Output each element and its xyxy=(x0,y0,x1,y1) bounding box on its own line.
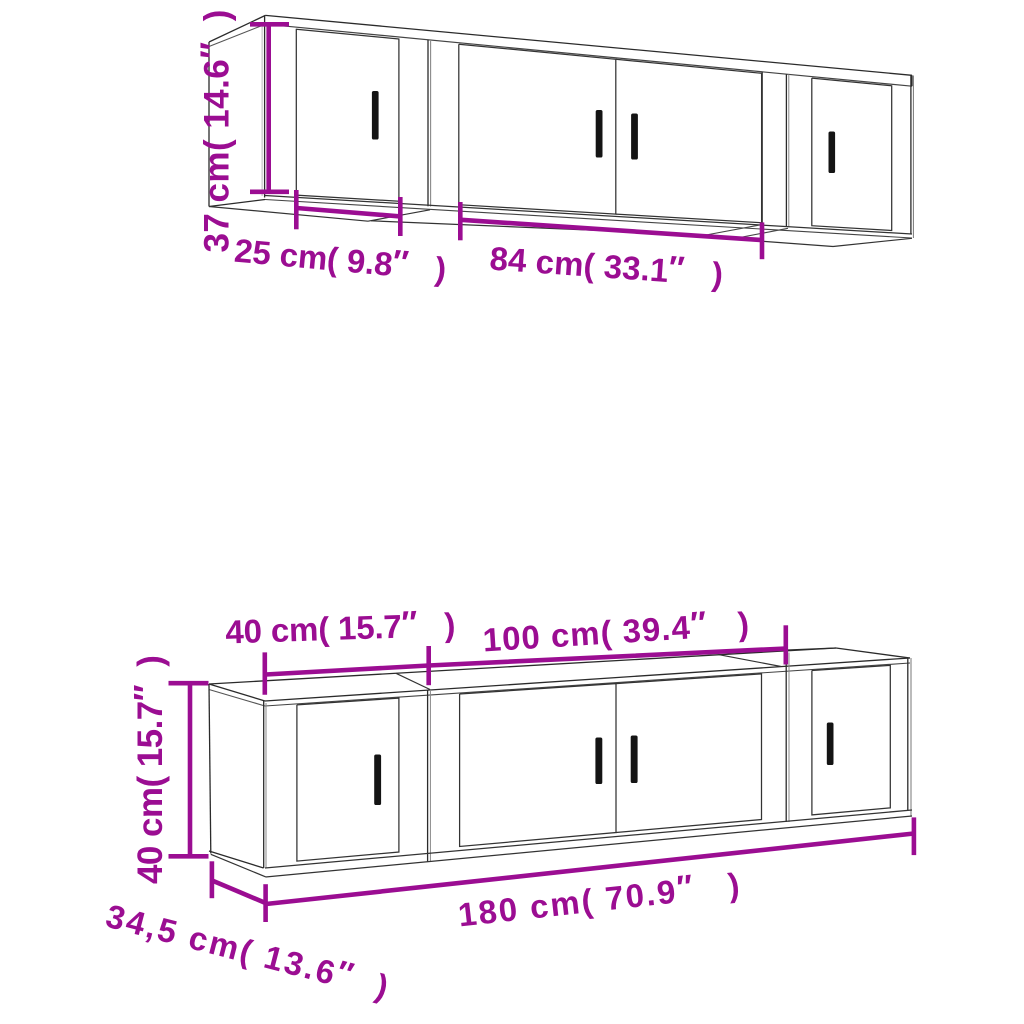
svg-text:37 cm( 14.6″ ): 37 cm( 14.6″ ) xyxy=(194,9,237,252)
svg-text:40 cm( 15.7″ ): 40 cm( 15.7″ ) xyxy=(128,656,171,884)
